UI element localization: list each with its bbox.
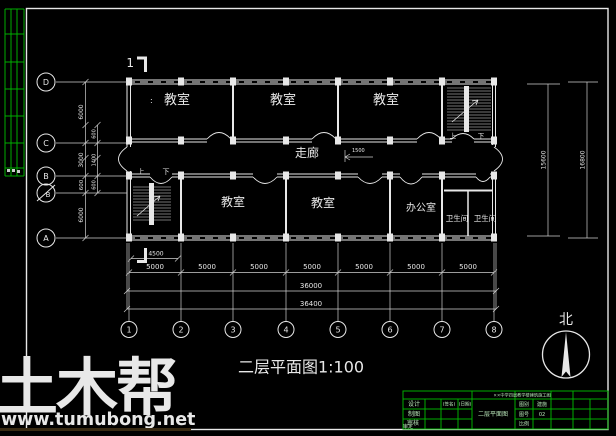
value-no: 02 [539, 412, 545, 418]
field-draft: 制图 [408, 410, 420, 418]
value-type: 建施 [537, 401, 547, 408]
field-scale: 比例 [519, 421, 529, 428]
label-colon: : [150, 96, 153, 105]
drawing-title: 二层平面图1:100 [238, 358, 364, 377]
field-type: 图别 [519, 401, 529, 408]
stair-up-label: 上 [138, 167, 145, 176]
room-label-toilet: 卫生间 [474, 213, 497, 223]
stair-northeast [447, 86, 491, 132]
grid-label-5: 5 [335, 326, 340, 335]
grid-label-a: A [43, 234, 49, 243]
watermark-url: www.tumubong.net [1, 410, 195, 430]
dim-bay: 5000 [198, 263, 216, 271]
grid-label-c: C [43, 139, 49, 148]
stair-down-label: 下 [478, 132, 485, 140]
corridor-note-value: 1500 [352, 148, 365, 154]
field-design: 设计 [408, 400, 420, 408]
dim-left: 6000 [78, 207, 85, 222]
grid-label-2: 2 [178, 326, 183, 335]
stair-down-label: 下 [163, 168, 170, 176]
grid-bubbles-left: D C B B A [37, 73, 55, 247]
dim-overall: 36400 [300, 300, 322, 308]
dim-right-inner: 15600 [541, 150, 548, 169]
grid-label-d: D [43, 78, 49, 87]
stair-stringer [149, 183, 154, 225]
room-label-classroom: 教室 [164, 92, 190, 108]
field-sign: (签名) [443, 401, 456, 408]
dim-left: 600 [79, 179, 85, 190]
watermark-underline [0, 428, 191, 431]
left-schedule-table [5, 9, 24, 176]
dim-left: 3000 [78, 152, 85, 167]
dim-total: 36000 [300, 282, 322, 290]
dim-bay: 5000 [407, 263, 425, 271]
dim-bay: 5000 [250, 263, 268, 271]
right-dim-lines [527, 82, 598, 238]
stair-stringer [464, 86, 469, 132]
cad-drawing-viewport: 1 2 3 4 5 6 7 8 D C B B A 1 : 教室 教室 教室 走… [0, 0, 616, 436]
room-label-classroom: 教室 [311, 195, 335, 210]
section-marks: 1 [126, 56, 147, 262]
title-block: ××中学四层教学楼建筑施工图 设计 (签名) (日期) 制图 审核 审定 二层平… [403, 391, 608, 430]
dim-left-inner: 600 [92, 180, 98, 190]
dim-left-inner: 1400 [92, 154, 98, 167]
drawing-name: 二层平面图 [478, 411, 508, 418]
dim-bay: 5000 [303, 263, 321, 271]
grid-label-7: 7 [439, 326, 444, 335]
dim-left: 6000 [78, 104, 85, 119]
grid-label-8: 8 [491, 326, 496, 335]
table-text-marks [7, 169, 20, 173]
north-label: 北 [559, 312, 573, 328]
dim-right-outer: 16800 [580, 150, 587, 169]
dim-entry: 4500 [148, 251, 163, 258]
stair-southwest [133, 183, 171, 225]
dim-bay: 5000 [355, 263, 373, 271]
grid-bubbles-bottom: 1 2 3 4 5 6 7 8 [121, 322, 502, 338]
section-number: 1 [126, 56, 134, 70]
corridor-note: 1500 [345, 148, 373, 162]
section-mark-bottom [137, 248, 147, 262]
field-approve: 审定 [403, 423, 413, 430]
north-needle [562, 332, 571, 377]
room-label-office: 办公室 [406, 201, 436, 214]
dim-left-inner: 600 [92, 129, 98, 139]
section-mark-top [137, 58, 147, 72]
room-label-classroom: 教室 [270, 92, 296, 108]
room-label-toilet: 卫生间 [446, 213, 469, 223]
watermark: 土木帮 www.tumubong.net [0, 351, 195, 431]
north-arrow: 北 [543, 312, 590, 378]
dim-bay: 5000 [146, 263, 164, 271]
floorplan-canvas: 1 2 3 4 5 6 7 8 D C B B A 1 : 教室 教室 教室 走… [0, 0, 616, 436]
field-date: (日期) [459, 402, 472, 408]
table-grid-lines [5, 9, 24, 176]
project-name: ××中学四层教学楼建筑施工图 [493, 392, 550, 399]
room-label-corridor: 走廊 [295, 145, 319, 160]
grid-label-1: 1 [126, 326, 131, 335]
grid-label-3: 3 [230, 326, 235, 335]
room-label-classroom: 教室 [373, 92, 399, 108]
room-label-classroom: 教室 [221, 194, 245, 209]
field-no: 图号 [519, 412, 529, 418]
grid-label-b: B [43, 172, 49, 181]
left-wall-lines [127, 80, 131, 240]
grid-label-b1: B [46, 191, 51, 199]
grid-label-4: 4 [283, 326, 288, 335]
stair-up-label: 上 [450, 131, 457, 140]
dim-bay: 5000 [459, 263, 477, 271]
grid-label-6: 6 [387, 326, 392, 335]
